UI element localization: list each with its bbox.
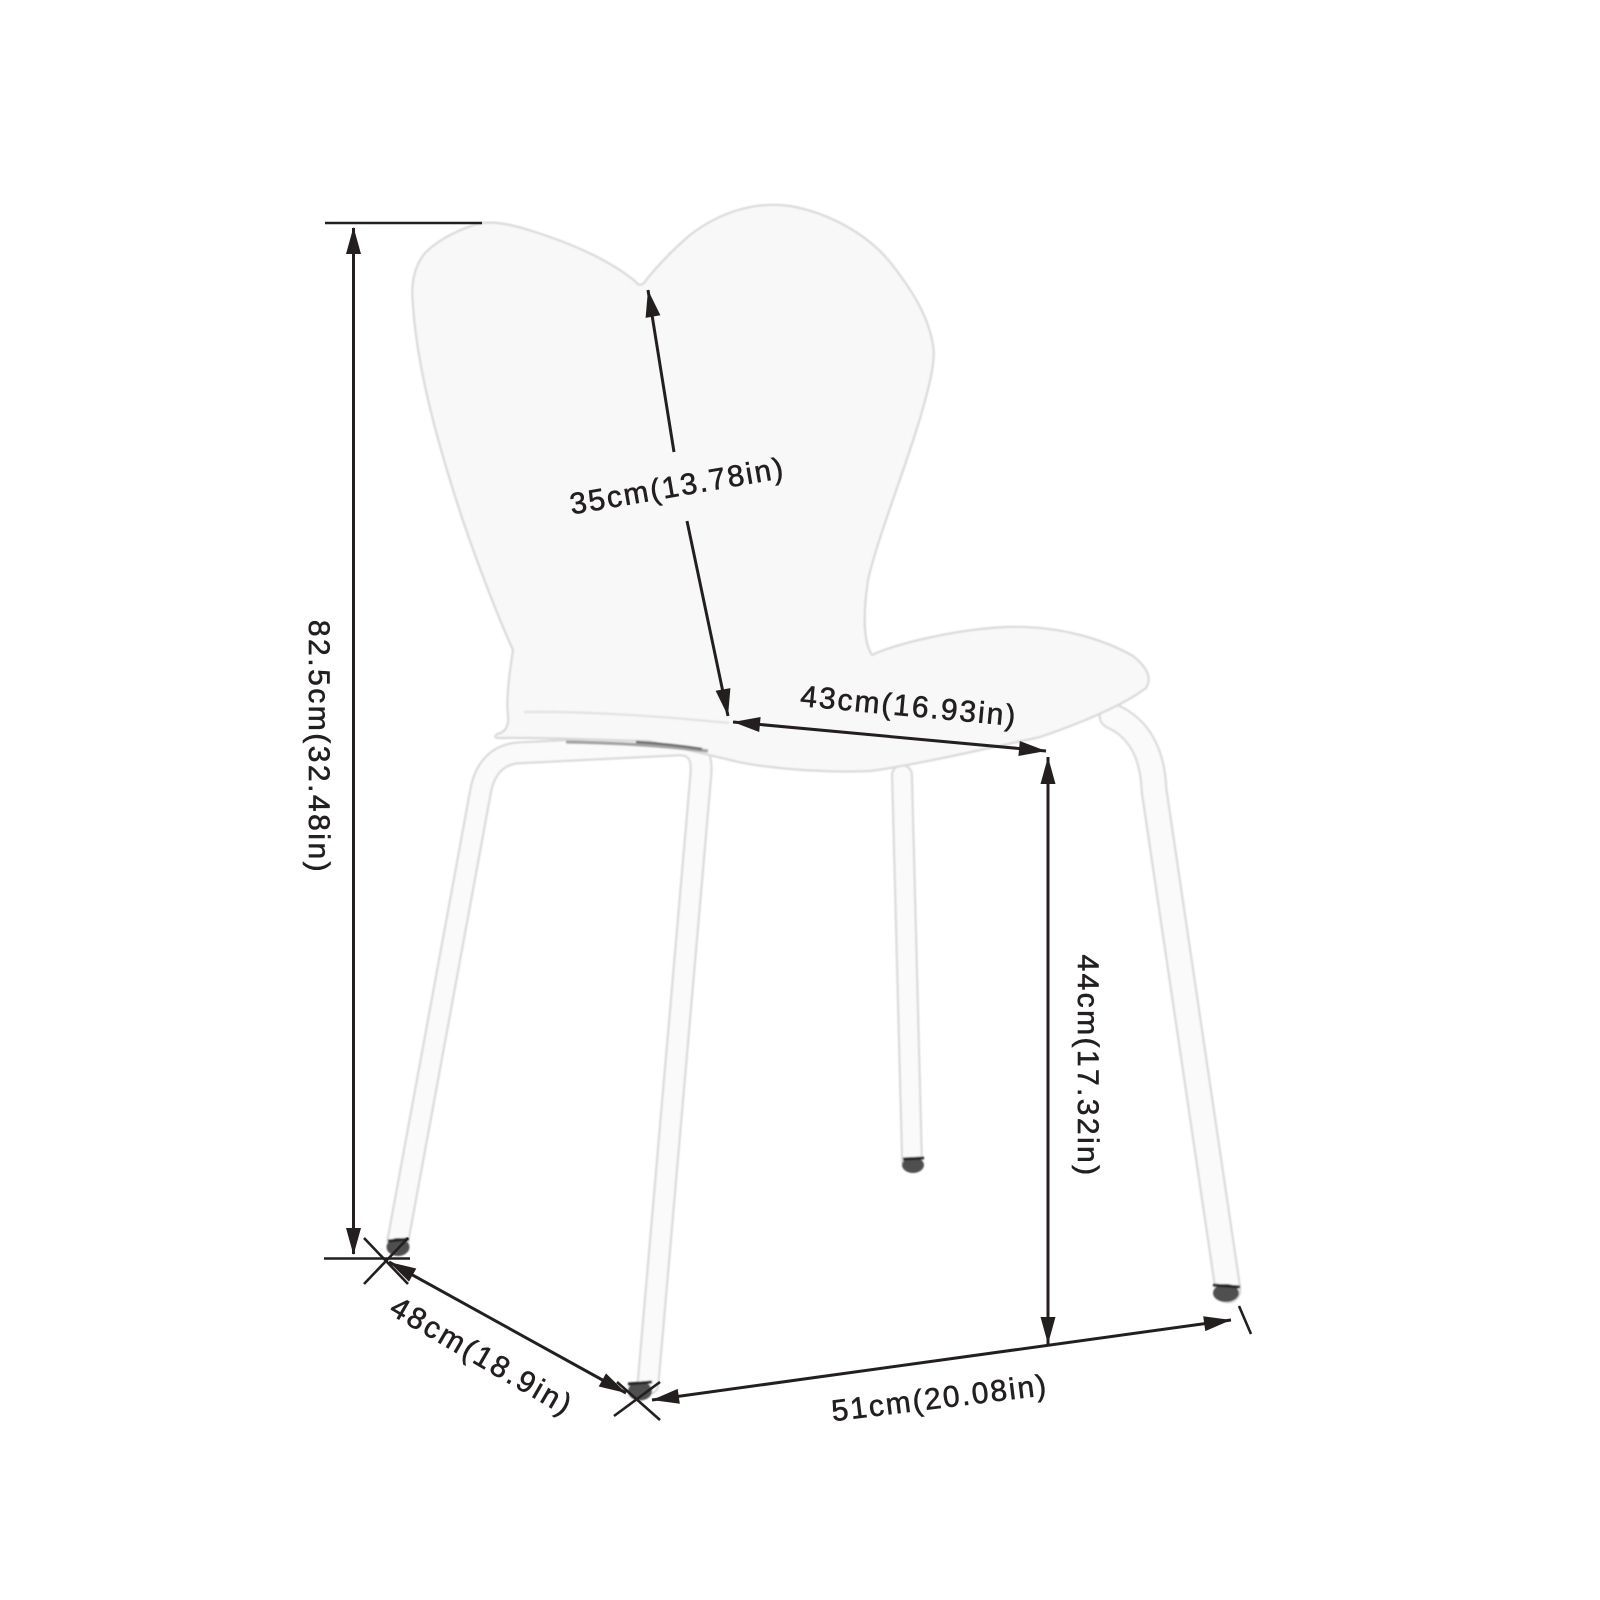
svg-text:82.5cm(32.48in): 82.5cm(32.48in)	[302, 620, 335, 874]
svg-text:44cm(17.32in): 44cm(17.32in)	[1071, 955, 1104, 1178]
